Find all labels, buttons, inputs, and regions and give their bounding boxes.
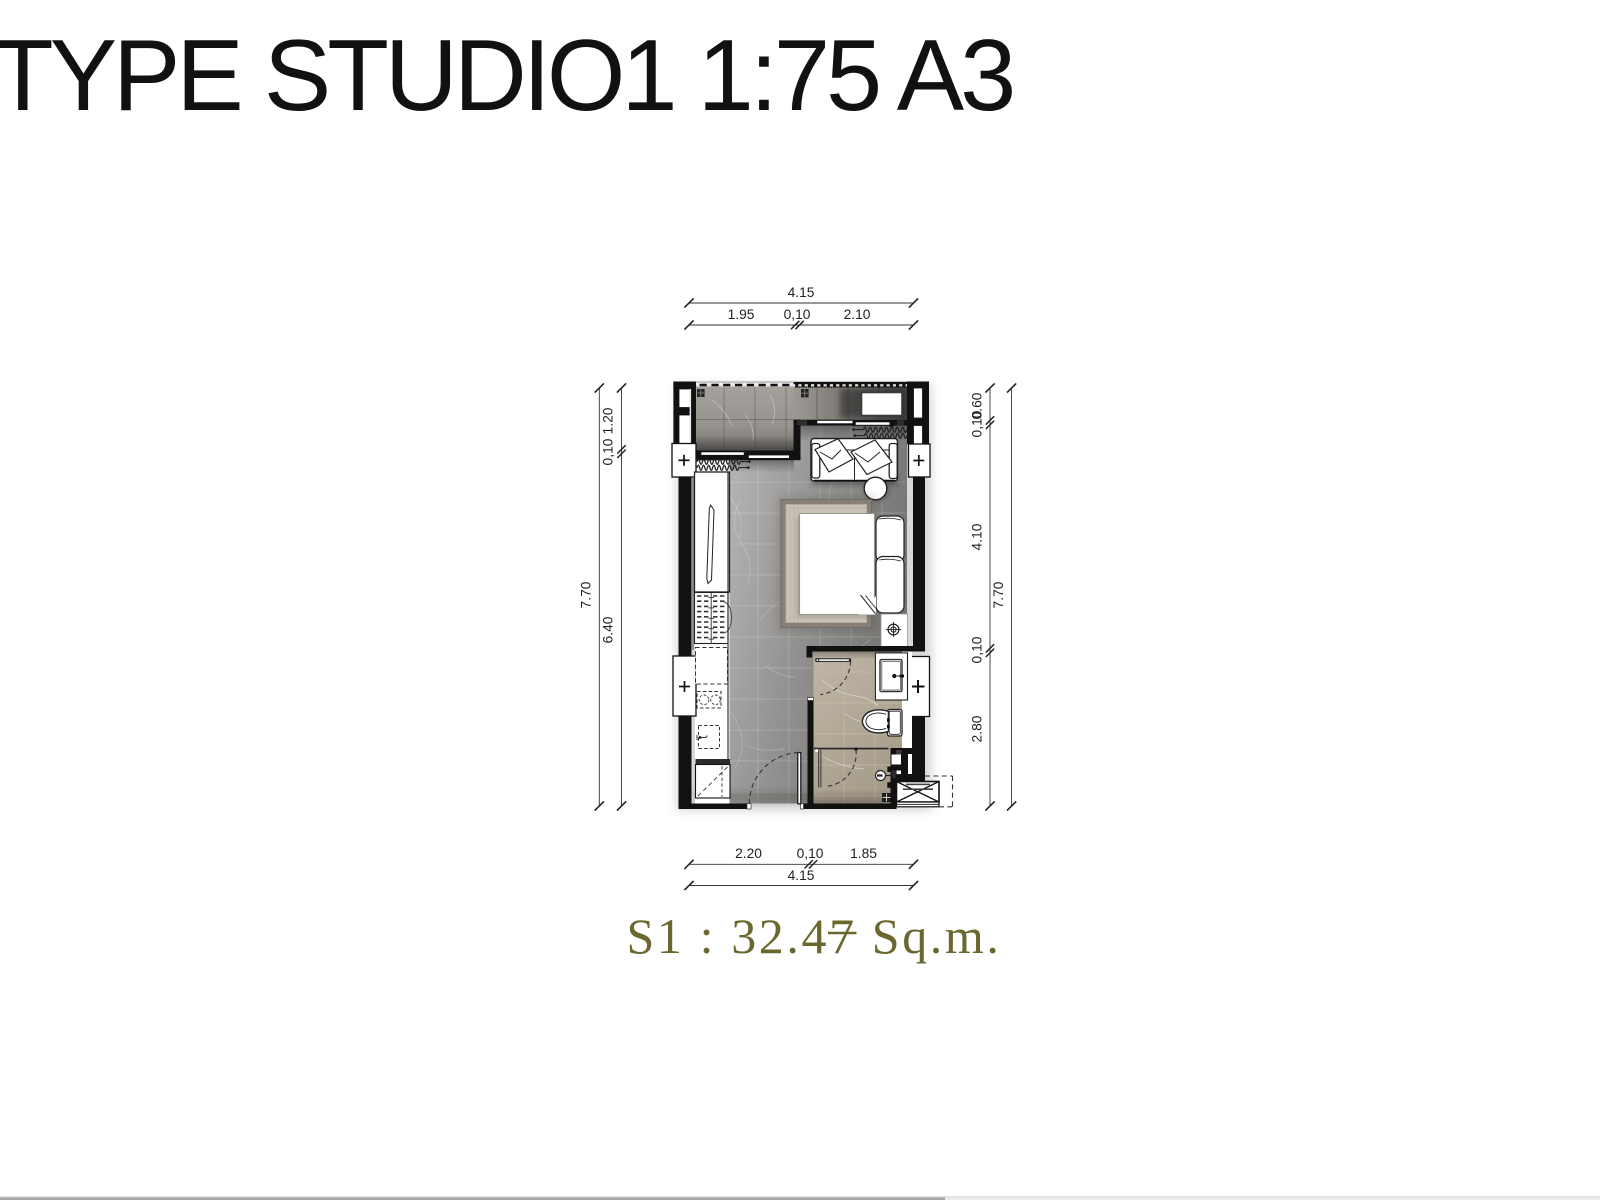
svg-text:S1 : 32.47 Sq.m.: S1 : 32.47 Sq.m. <box>627 908 1002 964</box>
svg-text:4.15: 4.15 <box>788 285 815 300</box>
svg-text:2.20: 2.20 <box>735 846 762 861</box>
svg-text:7.70: 7.70 <box>991 581 1006 608</box>
svg-text:1.95: 1.95 <box>728 307 755 322</box>
svg-text:6.40: 6.40 <box>601 616 616 643</box>
svg-text:0,10: 0,10 <box>970 636 985 663</box>
svg-text:0,10: 0,10 <box>970 410 985 437</box>
svg-text:0,10: 0,10 <box>784 307 811 322</box>
svg-text:0,10: 0,10 <box>601 438 616 465</box>
svg-text:1.85: 1.85 <box>850 846 877 861</box>
svg-text:1.20: 1.20 <box>601 407 616 434</box>
svg-text:7.70: 7.70 <box>579 581 594 608</box>
svg-text:4.10: 4.10 <box>970 523 985 550</box>
svg-text:2.80: 2.80 <box>970 715 985 742</box>
svg-text:2.10: 2.10 <box>844 307 871 322</box>
svg-text:4.15: 4.15 <box>788 868 815 883</box>
svg-text:0,10: 0,10 <box>797 846 824 861</box>
